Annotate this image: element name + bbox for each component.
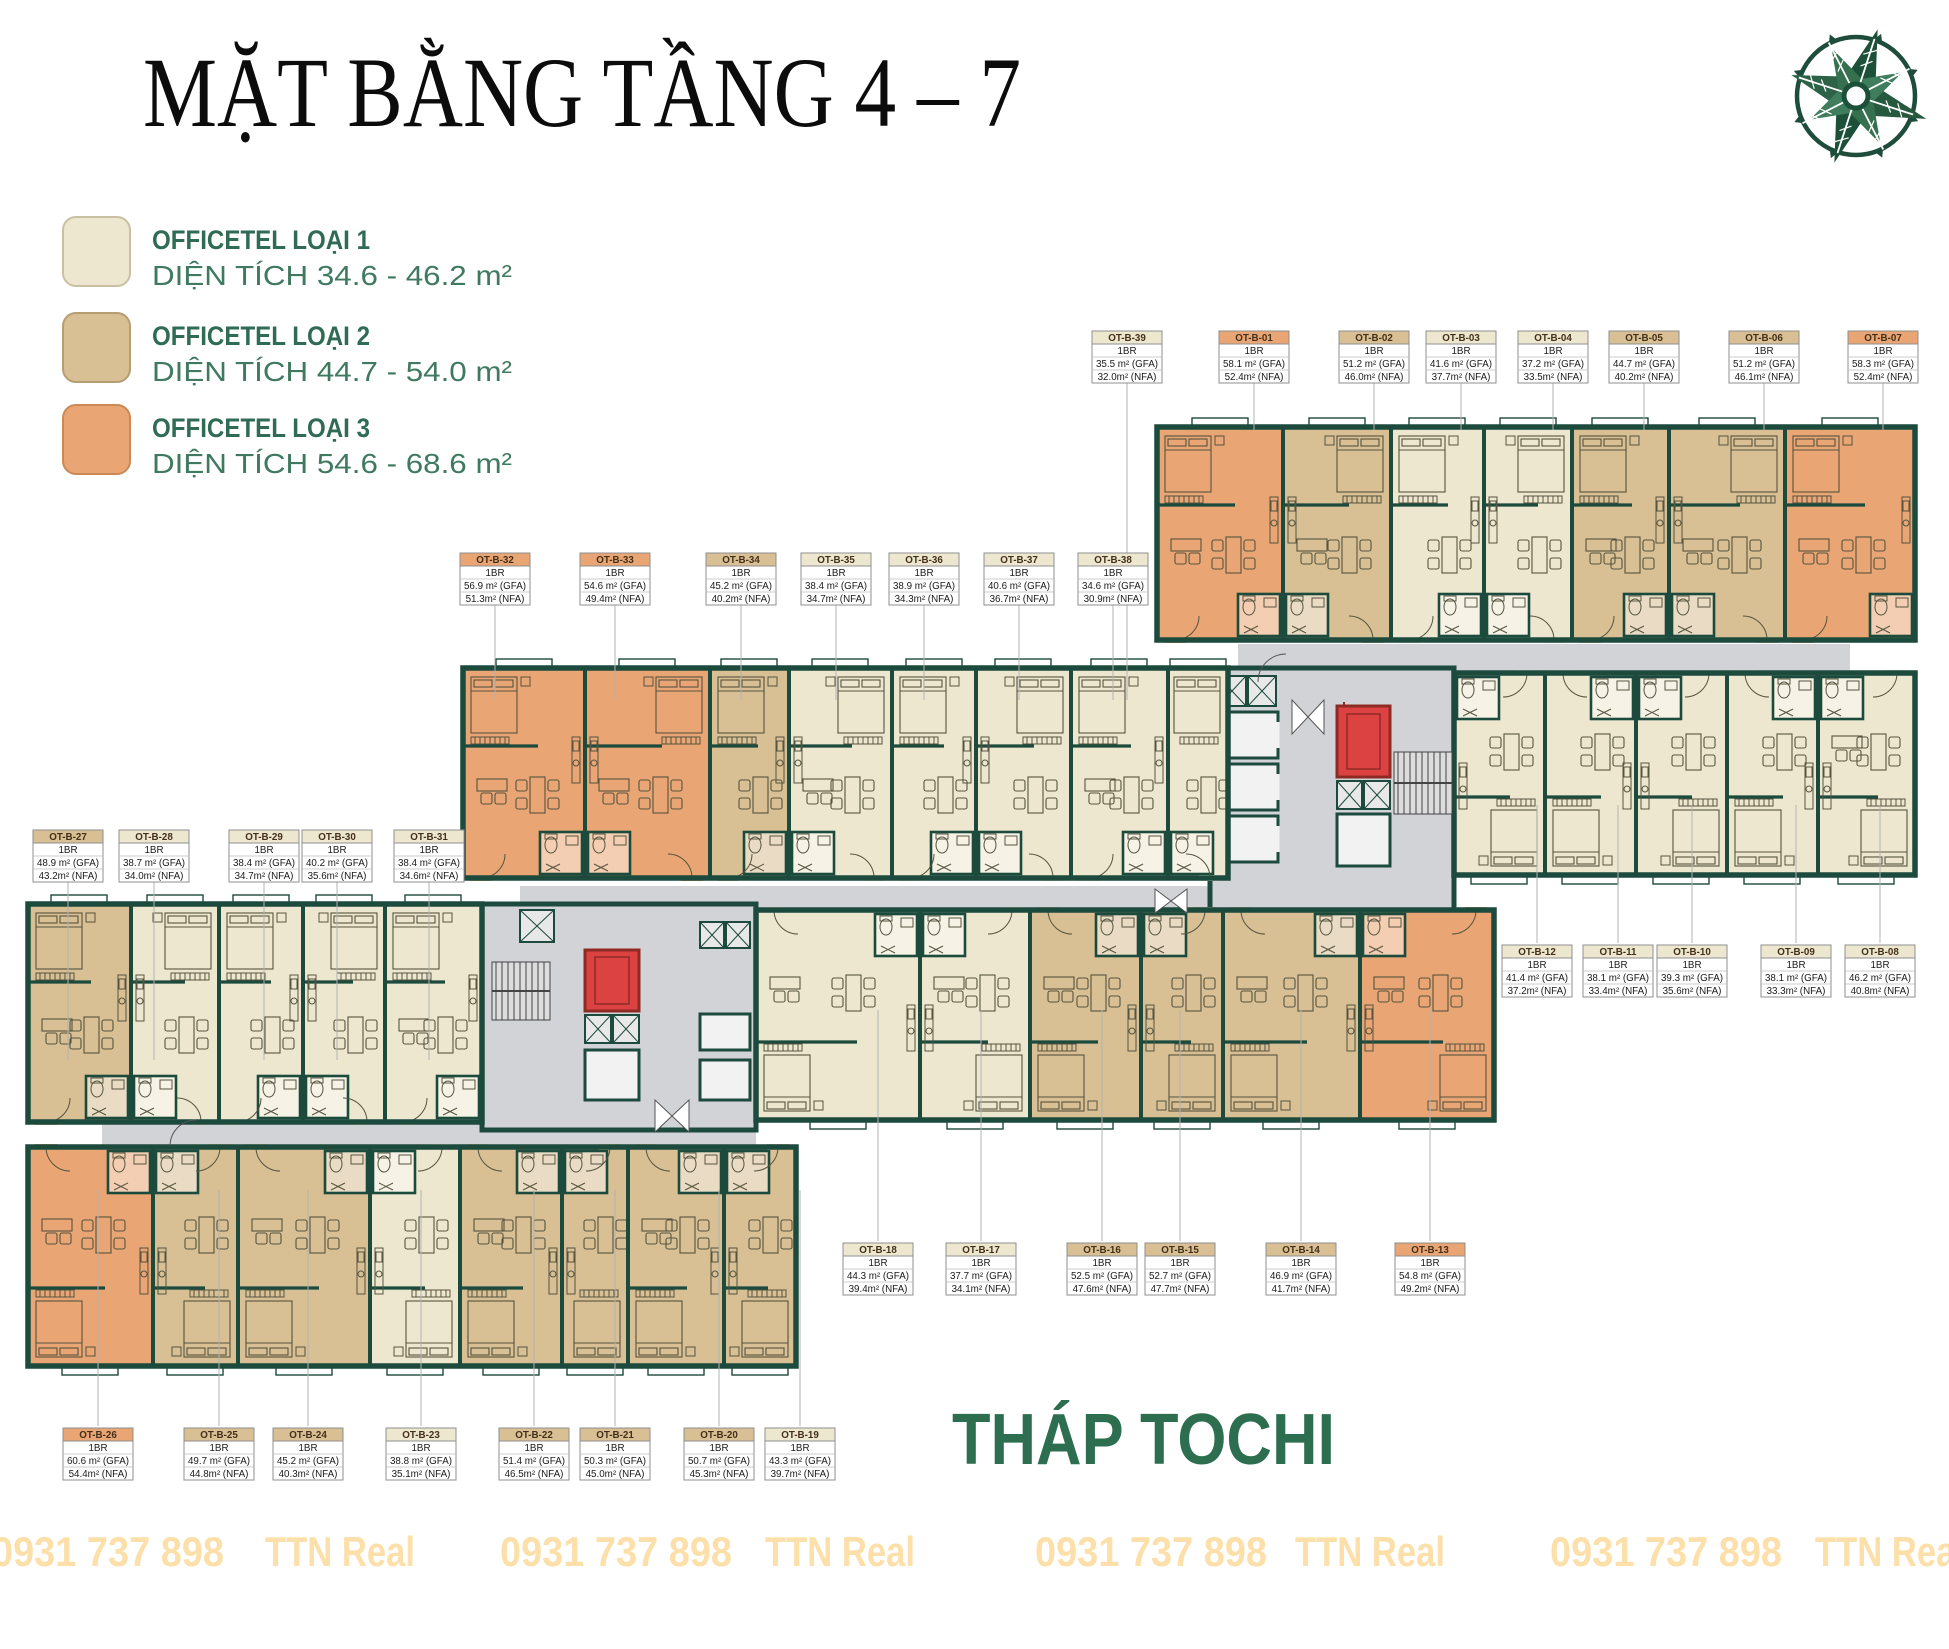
svg-text:1BR: 1BR [868,1258,887,1269]
svg-text:40.2 m² (GFA): 40.2 m² (GFA) [306,858,368,869]
svg-text:TTN Real: TTN Real [1815,1528,1949,1575]
svg-text:1BR: 1BR [209,1443,228,1454]
svg-text:38.4 m² (GFA): 38.4 m² (GFA) [233,858,295,869]
svg-text:35.5 m² (GFA): 35.5 m² (GFA) [1096,359,1158,370]
svg-text:OT-B-29: OT-B-29 [245,832,283,843]
svg-text:1BR: 1BR [1451,346,1470,357]
svg-text:47.6m² (NFA): 47.6m² (NFA) [1073,1284,1132,1295]
svg-text:OT-B-37: OT-B-37 [1000,555,1038,566]
svg-text:OFFICETEL LOẠI 2: OFFICETEL LOẠI 2 [152,321,370,351]
svg-text:OT-B-33: OT-B-33 [596,555,634,566]
svg-text:50.3 m² (GFA): 50.3 m² (GFA) [584,1456,646,1467]
svg-text:0931 737 898: 0931 737 898 [1035,1528,1267,1575]
svg-text:1BR: 1BR [1754,346,1773,357]
svg-text:OT-B-05: OT-B-05 [1625,333,1663,344]
svg-text:33.5m² (NFA): 33.5m² (NFA) [1524,372,1583,383]
svg-text:TTN Real: TTN Real [765,1528,915,1575]
svg-text:46.2 m² (GFA): 46.2 m² (GFA) [1849,973,1911,984]
svg-text:34.7m² (NFA): 34.7m² (NFA) [235,871,294,882]
svg-text:58.3 m² (GFA): 58.3 m² (GFA) [1852,359,1914,370]
svg-text:1BR: 1BR [605,1443,624,1454]
svg-text:1BR: 1BR [1291,1258,1310,1269]
svg-text:OT-B-13: OT-B-13 [1411,1245,1449,1256]
svg-text:38.1 m² (GFA): 38.1 m² (GFA) [1765,973,1827,984]
svg-text:45.3m² (NFA): 45.3m² (NFA) [690,1469,749,1480]
svg-text:56.9 m² (GFA): 56.9 m² (GFA) [464,581,526,592]
svg-text:OT-B-06: OT-B-06 [1745,333,1783,344]
svg-text:38.4 m² (GFA): 38.4 m² (GFA) [805,581,867,592]
svg-text:34.7m² (NFA): 34.7m² (NFA) [807,594,866,605]
svg-text:37.7m² (NFA): 37.7m² (NFA) [1432,372,1491,383]
svg-text:OT-B-01: OT-B-01 [1235,333,1273,344]
svg-text:DIỆN TÍCH 54.6 - 68.6 m²: DIỆN TÍCH 54.6 - 68.6 m² [152,448,512,479]
svg-text:46.1m² (NFA): 46.1m² (NFA) [1735,372,1794,383]
svg-text:1BR: 1BR [826,568,845,579]
svg-text:46.0m² (NFA): 46.0m² (NFA) [1345,372,1404,383]
svg-text:1BR: 1BR [524,1443,543,1454]
svg-text:OT-B-30: OT-B-30 [318,832,356,843]
svg-text:51.3m² (NFA): 51.3m² (NFA) [466,594,525,605]
svg-text:OT-B-25: OT-B-25 [200,1430,238,1441]
svg-text:1BR: 1BR [327,845,346,856]
svg-text:40.8m² (NFA): 40.8m² (NFA) [1851,986,1910,997]
svg-text:44.3 m² (GFA): 44.3 m² (GFA) [847,1271,909,1282]
svg-text:52.7 m² (GFA): 52.7 m² (GFA) [1149,1271,1211,1282]
svg-text:0931 737 898: 0931 737 898 [500,1528,732,1575]
svg-text:47.7m² (NFA): 47.7m² (NFA) [1151,1284,1210,1295]
svg-text:54.8 m² (GFA): 54.8 m² (GFA) [1399,1271,1461,1282]
svg-text:1BR: 1BR [1786,960,1805,971]
svg-text:1BR: 1BR [1170,1258,1189,1269]
svg-text:45.0m² (NFA): 45.0m² (NFA) [586,1469,645,1480]
svg-text:38.8 m² (GFA): 38.8 m² (GFA) [390,1456,452,1467]
svg-text:OT-B-08: OT-B-08 [1861,947,1899,958]
svg-text:1BR: 1BR [709,1443,728,1454]
svg-text:1BR: 1BR [58,845,77,856]
svg-text:51.4 m² (GFA): 51.4 m² (GFA) [503,1456,565,1467]
svg-text:50.7 m² (GFA): 50.7 m² (GFA) [688,1456,750,1467]
svg-text:TTN Real: TTN Real [1295,1528,1445,1575]
svg-text:1BR: 1BR [1009,568,1028,579]
svg-text:36.7m² (NFA): 36.7m² (NFA) [990,594,1049,605]
svg-text:43.2m² (NFA): 43.2m² (NFA) [39,871,98,882]
svg-text:35.1m² (NFA): 35.1m² (NFA) [392,1469,451,1480]
svg-text:46.5m² (NFA): 46.5m² (NFA) [505,1469,564,1480]
svg-text:41.4 m² (GFA): 41.4 m² (GFA) [1506,973,1568,984]
svg-text:34.0m² (NFA): 34.0m² (NFA) [125,871,184,882]
svg-text:35.6m² (NFA): 35.6m² (NFA) [1663,986,1722,997]
svg-text:OT-B-09: OT-B-09 [1777,947,1815,958]
svg-text:1BR: 1BR [1608,960,1627,971]
svg-text:MẶT BẰNG TẦNG 4 – 7: MẶT BẰNG TẦNG 4 – 7 [143,37,1021,148]
svg-text:49.2m² (NFA): 49.2m² (NFA) [1401,1284,1460,1295]
svg-text:0931 737 898: 0931 737 898 [0,1528,224,1575]
svg-text:OT-B-11: OT-B-11 [1599,947,1637,958]
svg-text:OFFICETEL LOẠI 3: OFFICETEL LOẠI 3 [152,413,370,443]
svg-text:44.8m² (NFA): 44.8m² (NFA) [190,1469,249,1480]
svg-text:OT-B-26: OT-B-26 [79,1430,117,1441]
svg-text:30.9m² (NFA): 30.9m² (NFA) [1084,594,1143,605]
svg-text:OT-B-23: OT-B-23 [402,1430,440,1441]
svg-text:34.3m² (NFA): 34.3m² (NFA) [895,594,954,605]
svg-text:48.9 m² (GFA): 48.9 m² (GFA) [37,858,99,869]
svg-text:OT-B-17: OT-B-17 [962,1245,1000,1256]
svg-text:40.6 m² (GFA): 40.6 m² (GFA) [988,581,1050,592]
svg-text:1BR: 1BR [1870,960,1889,971]
svg-text:OT-B-22: OT-B-22 [515,1430,553,1441]
svg-text:45.2 m² (GFA): 45.2 m² (GFA) [277,1456,339,1467]
svg-text:32.0m² (NFA): 32.0m² (NFA) [1098,372,1157,383]
svg-text:34.1m² (NFA): 34.1m² (NFA) [952,1284,1011,1295]
svg-text:OT-B-16: OT-B-16 [1083,1245,1121,1256]
svg-text:OT-B-12: OT-B-12 [1518,947,1556,958]
svg-text:46.9 m² (GFA): 46.9 m² (GFA) [1270,1271,1332,1282]
svg-text:OT-B-10: OT-B-10 [1673,947,1711,958]
svg-text:1BR: 1BR [1092,1258,1111,1269]
svg-text:51.2 m² (GFA): 51.2 m² (GFA) [1343,359,1405,370]
svg-text:OT-B-27: OT-B-27 [49,832,87,843]
svg-text:41.6 m² (GFA): 41.6 m² (GFA) [1430,359,1492,370]
svg-text:54.4m² (NFA): 54.4m² (NFA) [69,1469,128,1480]
svg-text:1BR: 1BR [1543,346,1562,357]
svg-text:1BR: 1BR [1420,1258,1439,1269]
svg-text:OT-B-39: OT-B-39 [1108,333,1146,344]
svg-text:OT-B-03: OT-B-03 [1442,333,1480,344]
svg-text:OT-B-35: OT-B-35 [817,555,855,566]
svg-text:1BR: 1BR [1634,346,1653,357]
svg-text:TTN Real: TTN Real [265,1528,415,1575]
svg-text:39.4m² (NFA): 39.4m² (NFA) [849,1284,908,1295]
svg-text:37.7 m² (GFA): 37.7 m² (GFA) [950,1271,1012,1282]
svg-text:33.4m² (NFA): 33.4m² (NFA) [1589,986,1648,997]
svg-text:1BR: 1BR [605,568,624,579]
svg-text:33.3m² (NFA): 33.3m² (NFA) [1767,986,1826,997]
svg-text:43.3 m² (GFA): 43.3 m² (GFA) [769,1456,831,1467]
svg-text:1BR: 1BR [790,1443,809,1454]
svg-text:52.4m² (NFA): 52.4m² (NFA) [1225,372,1284,383]
svg-text:OT-B-38: OT-B-38 [1094,555,1132,566]
svg-text:OT-B-14: OT-B-14 [1282,1245,1320,1256]
svg-text:45.2 m² (GFA): 45.2 m² (GFA) [710,581,772,592]
svg-text:OT-B-07: OT-B-07 [1864,333,1902,344]
svg-text:1BR: 1BR [1527,960,1546,971]
svg-text:41.7m² (NFA): 41.7m² (NFA) [1272,1284,1331,1295]
svg-text:OT-B-04: OT-B-04 [1534,333,1572,344]
svg-text:40.3m² (NFA): 40.3m² (NFA) [279,1469,338,1480]
svg-text:52.4m² (NFA): 52.4m² (NFA) [1854,372,1913,383]
svg-text:OT-B-02: OT-B-02 [1355,333,1393,344]
svg-text:1BR: 1BR [144,845,163,856]
svg-text:1BR: 1BR [1244,346,1263,357]
svg-text:1BR: 1BR [419,845,438,856]
svg-text:49.7 m² (GFA): 49.7 m² (GFA) [188,1456,250,1467]
svg-text:49.4m² (NFA): 49.4m² (NFA) [586,594,645,605]
svg-text:THÁP TOCHI: THÁP TOCHI [952,1400,1335,1480]
svg-text:OT-B-19: OT-B-19 [781,1430,819,1441]
svg-text:OT-B-24: OT-B-24 [289,1430,327,1441]
svg-text:39.3 m² (GFA): 39.3 m² (GFA) [1661,973,1723,984]
svg-text:DIỆN TÍCH 34.6 - 46.2 m²: DIỆN TÍCH 34.6 - 46.2 m² [152,260,512,291]
svg-text:1BR: 1BR [971,1258,990,1269]
svg-text:38.7 m² (GFA): 38.7 m² (GFA) [123,858,185,869]
svg-text:34.6 m² (GFA): 34.6 m² (GFA) [1082,581,1144,592]
svg-text:1BR: 1BR [731,568,750,579]
svg-text:OFFICETEL LOẠI 1: OFFICETEL LOẠI 1 [152,225,370,255]
svg-text:1BR: 1BR [485,568,504,579]
svg-text:0931 737 898: 0931 737 898 [1550,1528,1782,1575]
svg-text:1BR: 1BR [411,1443,430,1454]
svg-text:OT-B-20: OT-B-20 [700,1430,738,1441]
svg-text:OT-B-28: OT-B-28 [135,832,173,843]
svg-text:DIỆN TÍCH 44.7 - 54.0 m²: DIỆN TÍCH 44.7 - 54.0 m² [152,356,512,387]
svg-text:1BR: 1BR [1103,568,1122,579]
svg-text:1BR: 1BR [1117,346,1136,357]
svg-text:1BR: 1BR [1682,960,1701,971]
svg-text:44.7 m² (GFA): 44.7 m² (GFA) [1613,359,1675,370]
svg-text:1BR: 1BR [254,845,273,856]
svg-text:OT-B-21: OT-B-21 [596,1430,634,1441]
svg-text:1BR: 1BR [914,568,933,579]
svg-text:54.6 m² (GFA): 54.6 m² (GFA) [584,581,646,592]
svg-text:38.1 m² (GFA): 38.1 m² (GFA) [1587,973,1649,984]
svg-text:60.6 m² (GFA): 60.6 m² (GFA) [67,1456,129,1467]
svg-text:34.6m² (NFA): 34.6m² (NFA) [400,871,459,882]
svg-text:OT-B-36: OT-B-36 [905,555,943,566]
svg-text:OT-B-31: OT-B-31 [410,832,448,843]
svg-text:38.9 m² (GFA): 38.9 m² (GFA) [893,581,955,592]
svg-text:35.6m² (NFA): 35.6m² (NFA) [308,871,367,882]
svg-text:37.2m² (NFA): 37.2m² (NFA) [1508,986,1567,997]
svg-text:1BR: 1BR [1873,346,1892,357]
svg-text:OT-B-32: OT-B-32 [476,555,514,566]
svg-text:39.7m² (NFA): 39.7m² (NFA) [771,1469,830,1480]
svg-text:51.2 m² (GFA): 51.2 m² (GFA) [1733,359,1795,370]
svg-text:OT-B-34: OT-B-34 [722,555,760,566]
svg-text:52.5 m² (GFA): 52.5 m² (GFA) [1071,1271,1133,1282]
svg-text:38.4 m² (GFA): 38.4 m² (GFA) [398,858,460,869]
svg-text:OT-B-18: OT-B-18 [859,1245,897,1256]
svg-text:1BR: 1BR [1364,346,1383,357]
svg-text:40.2m² (NFA): 40.2m² (NFA) [1615,372,1674,383]
svg-text:1BR: 1BR [298,1443,317,1454]
svg-text:58.1 m² (GFA): 58.1 m² (GFA) [1223,359,1285,370]
svg-text:37.2 m² (GFA): 37.2 m² (GFA) [1522,359,1584,370]
svg-text:40.2m² (NFA): 40.2m² (NFA) [712,594,771,605]
svg-text:1BR: 1BR [88,1443,107,1454]
svg-text:OT-B-15: OT-B-15 [1161,1245,1199,1256]
